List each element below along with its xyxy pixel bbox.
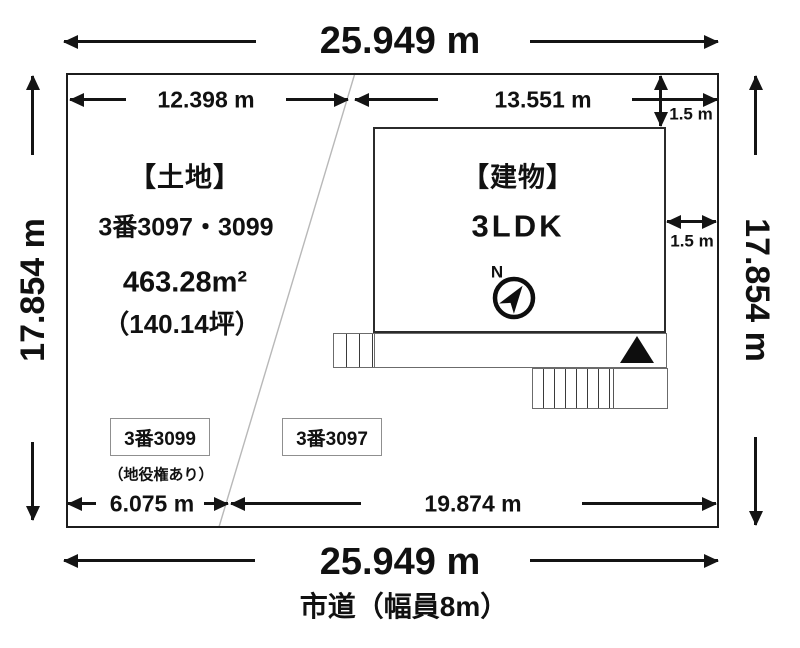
land-lot-numbers: 3番3097・3099: [98, 216, 273, 241]
building-layout: 3LDK: [472, 211, 565, 242]
left-depth-label: 17.854 m: [16, 218, 50, 362]
entrance-marker-triangle: [620, 336, 654, 363]
arrow-seg-6075-left: [68, 502, 96, 505]
parcel-left-label: 3番3099: [124, 424, 196, 451]
arrow-seg-19874-left: [231, 502, 361, 505]
arrow-seg-12398-left: [70, 98, 126, 101]
setback-top-label: 1.5 m: [669, 106, 712, 123]
arrow-bottom-width-left: [64, 559, 255, 562]
segment-13551-label: 13.551 m: [494, 89, 591, 112]
setback-right-label: 1.5 m: [670, 233, 713, 250]
parcel-right-box: 3番3097: [282, 418, 382, 456]
parcel-right-label: 3番3097: [296, 424, 368, 451]
approach-stairs: [532, 368, 668, 409]
arrow-right-depth-up: [754, 76, 757, 155]
segment-12398-label: 12.398 m: [157, 89, 254, 112]
arrow-setback-right: [667, 220, 716, 223]
right-depth-label: 17.854 m: [740, 218, 774, 362]
parcel-left-note: （地役権あり）: [108, 468, 213, 483]
segment-6075-label: 6.075 m: [110, 493, 194, 516]
bottom-width-label: 25.949 m: [320, 543, 481, 581]
arrow-top-width-left: [64, 40, 256, 43]
land-heading: 【土地】: [129, 165, 241, 192]
arrow-top-width-right: [530, 40, 718, 43]
porch-steps-hatch: [334, 334, 375, 367]
segment-19874-label: 19.874 m: [424, 493, 521, 516]
arrow-seg-6075-right: [204, 502, 228, 505]
arrow-seg-13551-left: [355, 98, 438, 101]
arrow-seg-13551-right: [632, 98, 717, 101]
land-area-tsubo: （140.14坪）: [103, 311, 261, 337]
road-label: 市道（幅員8m）: [300, 593, 508, 621]
approach-stairs-hatch: [533, 369, 614, 408]
arrow-seg-12398-right: [286, 98, 348, 101]
building-heading: 【建物】: [462, 165, 574, 192]
arrow-left-depth-up: [31, 76, 34, 155]
arrow-bottom-width-right: [530, 559, 718, 562]
arrow-seg-19874-right: [582, 502, 716, 505]
parcel-left-box: 3番3099: [110, 418, 210, 456]
land-plot-diagram: N 25.949 m 12.398 m 13.551 m 1.5 m 1.5 m…: [0, 0, 800, 648]
top-width-label: 25.949 m: [320, 22, 481, 60]
porch-strip: [333, 333, 667, 368]
arrow-left-depth-down: [31, 442, 34, 520]
land-area-sqm: 463.28m²: [123, 269, 247, 298]
arrow-right-depth-down: [754, 437, 757, 525]
arrow-setback-top: [659, 76, 662, 126]
compass-icon: [488, 272, 540, 324]
